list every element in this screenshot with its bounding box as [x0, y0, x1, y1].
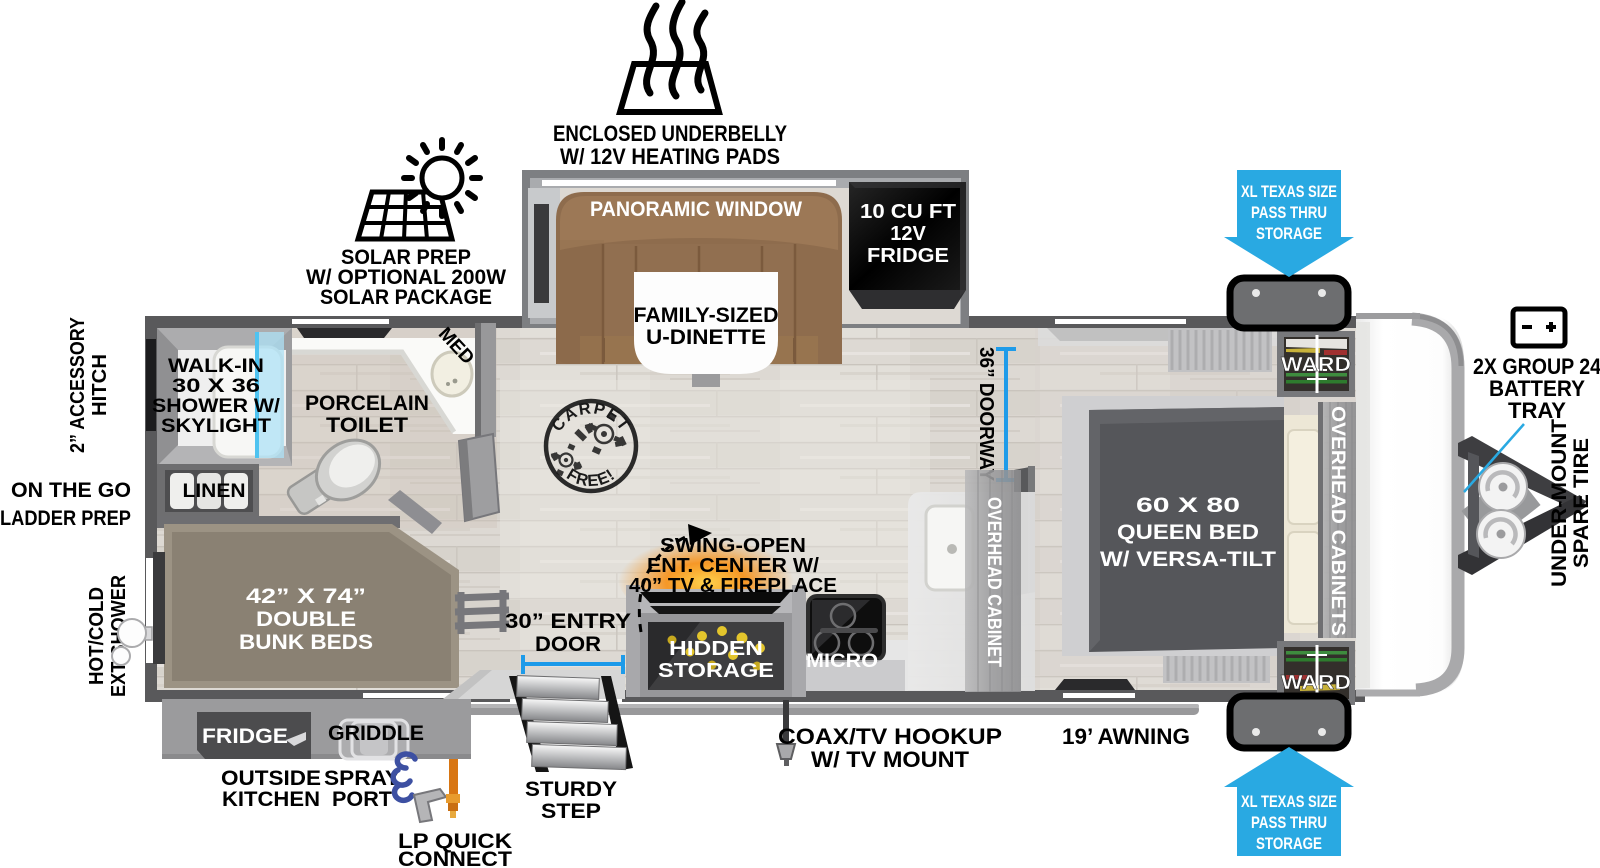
svg-text:WARD: WARD [1281, 672, 1351, 694]
svg-text:FAMILY-SIZED: FAMILY-SIZED [634, 304, 779, 327]
svg-text:DOUBLE: DOUBLE [256, 608, 356, 631]
svg-text:ENT. CENTER W/: ENT. CENTER W/ [647, 555, 819, 577]
svg-text:TOILET: TOILET [326, 414, 408, 437]
svg-text:60 X 80: 60 X 80 [1136, 494, 1240, 517]
svg-text:SPARE TIRE: SPARE TIRE [1570, 438, 1593, 568]
svg-text:W/ 12V HEATING PADS: W/ 12V HEATING PADS [560, 144, 780, 169]
svg-text:W/ TV MOUNT: W/ TV MOUNT [811, 747, 970, 772]
svg-text:GRIDDLE: GRIDDLE [328, 722, 424, 745]
svg-text:OUTSIDE: OUTSIDE [221, 767, 321, 790]
svg-text:ENCLOSED UNDERBELLY: ENCLOSED UNDERBELLY [553, 121, 787, 146]
svg-text:XL TEXAS SIZE: XL TEXAS SIZE [1241, 182, 1337, 201]
svg-text:STORAGE: STORAGE [658, 660, 774, 682]
svg-text:PORT: PORT [332, 788, 392, 811]
svg-text:HITCH: HITCH [89, 354, 111, 416]
svg-text:SOLAR PACKAGE: SOLAR PACKAGE [320, 286, 492, 309]
svg-text:LADDER PREP: LADDER PREP [0, 507, 131, 530]
svg-text:SKYLIGHT: SKYLIGHT [161, 416, 271, 437]
svg-text:U-DINETTE: U-DINETTE [646, 326, 766, 349]
svg-text:FRIDGE: FRIDGE [202, 725, 288, 748]
svg-text:36” DOORWAY: 36” DOORWAY [975, 347, 997, 482]
svg-text:PASS THRU: PASS THRU [1251, 813, 1327, 832]
svg-text:30 X 36: 30 X 36 [172, 376, 260, 397]
svg-text:PASS THRU: PASS THRU [1251, 203, 1327, 222]
svg-text:KITCHEN: KITCHEN [222, 788, 320, 811]
svg-text:OVERHEAD CABINETS: OVERHEAD CABINETS [1327, 406, 1348, 636]
svg-text:DOOR: DOOR [535, 633, 601, 656]
svg-text:WALK-IN: WALK-IN [168, 356, 264, 377]
svg-text:SHOWER W/: SHOWER W/ [152, 396, 281, 417]
svg-text:42” X 74”: 42” X 74” [246, 585, 366, 608]
svg-text:PORCELAIN: PORCELAIN [305, 392, 429, 415]
svg-text:XL TEXAS SIZE: XL TEXAS SIZE [1241, 792, 1337, 811]
svg-text:TRAY: TRAY [1508, 398, 1566, 423]
svg-text:ON THE GO: ON THE GO [11, 479, 131, 502]
svg-text:W/ VERSA-TILT: W/ VERSA-TILT [1100, 548, 1276, 571]
svg-text:12V: 12V [890, 223, 926, 245]
svg-text:CONNECT: CONNECT [398, 848, 512, 868]
svg-text:30” ENTRY: 30” ENTRY [505, 610, 631, 633]
svg-text:STORAGE: STORAGE [1256, 834, 1322, 853]
svg-text:19’ AWNING: 19’ AWNING [1062, 724, 1190, 749]
svg-text:STEP: STEP [541, 800, 601, 823]
svg-text:2” ACCESSORY: 2” ACCESSORY [67, 316, 89, 453]
svg-text:FRIDGE: FRIDGE [867, 245, 949, 267]
svg-text:OVERHEAD CABINET: OVERHEAD CABINET [983, 497, 1004, 667]
svg-text:PANORAMIC WINDOW: PANORAMIC WINDOW [590, 198, 802, 221]
svg-text:UNDER-MOUNT: UNDER-MOUNT [1548, 419, 1571, 587]
svg-text:WARD: WARD [1281, 354, 1351, 376]
svg-text:40” TV & FIREPLACE: 40” TV & FIREPLACE [629, 575, 837, 597]
svg-text:STURDY: STURDY [525, 778, 617, 801]
svg-text:10 CU FT: 10 CU FT [860, 201, 956, 223]
svg-text:BUNK BEDS: BUNK BEDS [239, 631, 373, 654]
svg-text:STORAGE: STORAGE [1256, 224, 1322, 243]
svg-text:HOT/COLD: HOT/COLD [86, 587, 108, 685]
svg-text:QUEEN BED: QUEEN BED [1117, 521, 1259, 544]
svg-text:MICRO: MICRO [806, 651, 878, 672]
svg-text:HIDDEN: HIDDEN [669, 638, 763, 660]
svg-text:LINEN: LINEN [183, 481, 246, 502]
svg-text:SPRAY: SPRAY [324, 767, 400, 790]
svg-text:COAX/TV HOOKUP: COAX/TV HOOKUP [778, 724, 1002, 749]
